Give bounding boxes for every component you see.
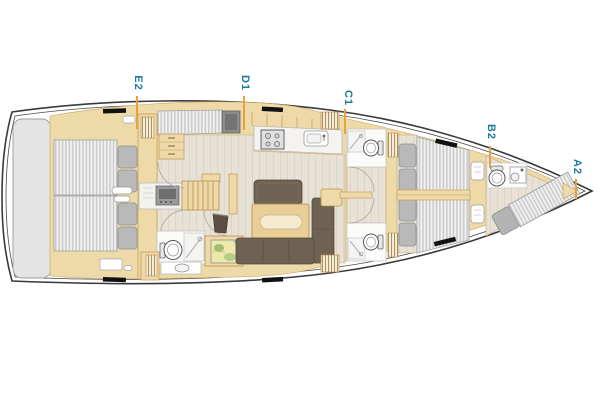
washbasin-icon (510, 167, 526, 183)
zone-marker-c1 (344, 109, 346, 134)
washbasin-icon (175, 264, 189, 272)
toilet-icon (364, 140, 384, 156)
swim-platform (13, 119, 51, 278)
stove-icon (261, 130, 284, 149)
sink-icon (304, 131, 328, 146)
sofa-end-table (321, 189, 342, 206)
saloon-bench (254, 180, 302, 205)
toilet-icon (489, 166, 505, 186)
zone-marker-a2 (575, 179, 577, 199)
toilet-icon (364, 234, 384, 250)
forward-head-port (347, 129, 386, 167)
mast-stool (213, 214, 228, 233)
layout-canvas: E2 D1 C1 B2 A2 (0, 0, 600, 400)
zone-label-c1[interactable]: C1 (341, 87, 355, 109)
zone-marker-e2 (136, 96, 138, 129)
zone-label-b2[interactable]: B2 (484, 121, 498, 143)
toilet-icon (160, 241, 182, 260)
zone-marker-b2 (489, 146, 491, 168)
forward-head-starboard (347, 223, 386, 261)
zone-label-a2[interactable]: A2 (570, 156, 584, 178)
zone-label-e2[interactable]: E2 (131, 72, 145, 94)
zone-marker-d1 (243, 96, 245, 130)
yacht-floorplan (0, 0, 600, 400)
zone-label-d1[interactable]: D1 (238, 72, 252, 94)
